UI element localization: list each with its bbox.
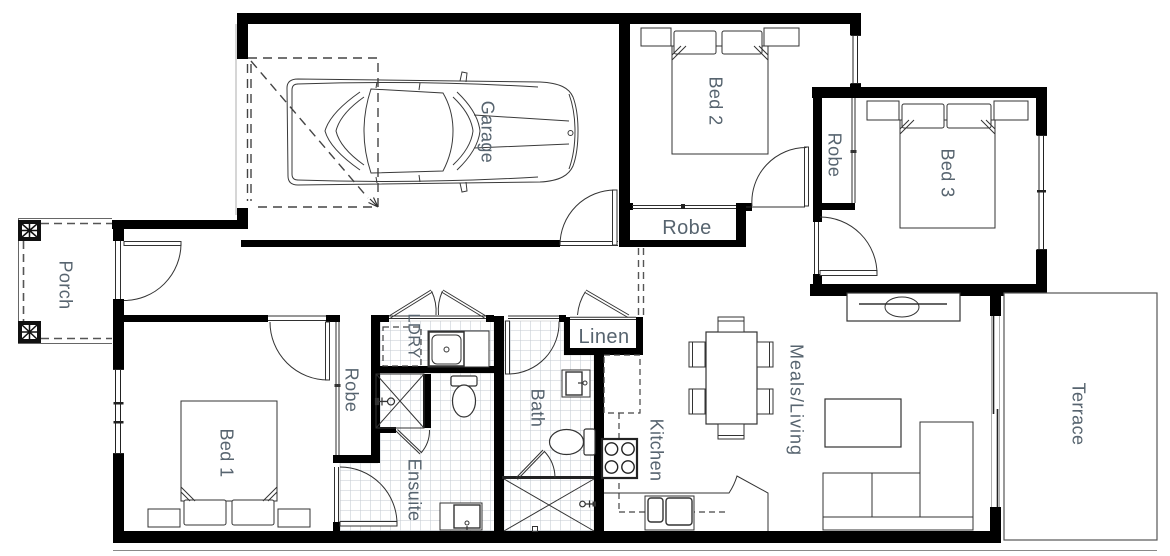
svg-text:Robe: Robe [662, 217, 711, 239]
svg-text:Bed 2: Bed 2 [705, 76, 725, 125]
svg-text:Ensuite: Ensuite [404, 459, 424, 522]
svg-text:LDRY: LDRY [405, 313, 423, 358]
svg-text:Robe: Robe [341, 368, 361, 413]
svg-text:Robe: Robe [824, 133, 844, 178]
svg-text:Meals/Living: Meals/Living [786, 344, 806, 456]
svg-text:Terrace: Terrace [1068, 383, 1088, 446]
svg-text:Bath: Bath [527, 389, 547, 428]
svg-text:Porch: Porch [55, 260, 75, 309]
svg-text:Bed 3: Bed 3 [937, 148, 957, 197]
svg-text:Linen: Linen [579, 326, 630, 348]
svg-text:Kitchen: Kitchen [646, 419, 666, 482]
svg-text:Bed 1: Bed 1 [216, 428, 236, 477]
svg-text:Garage: Garage [477, 101, 497, 163]
